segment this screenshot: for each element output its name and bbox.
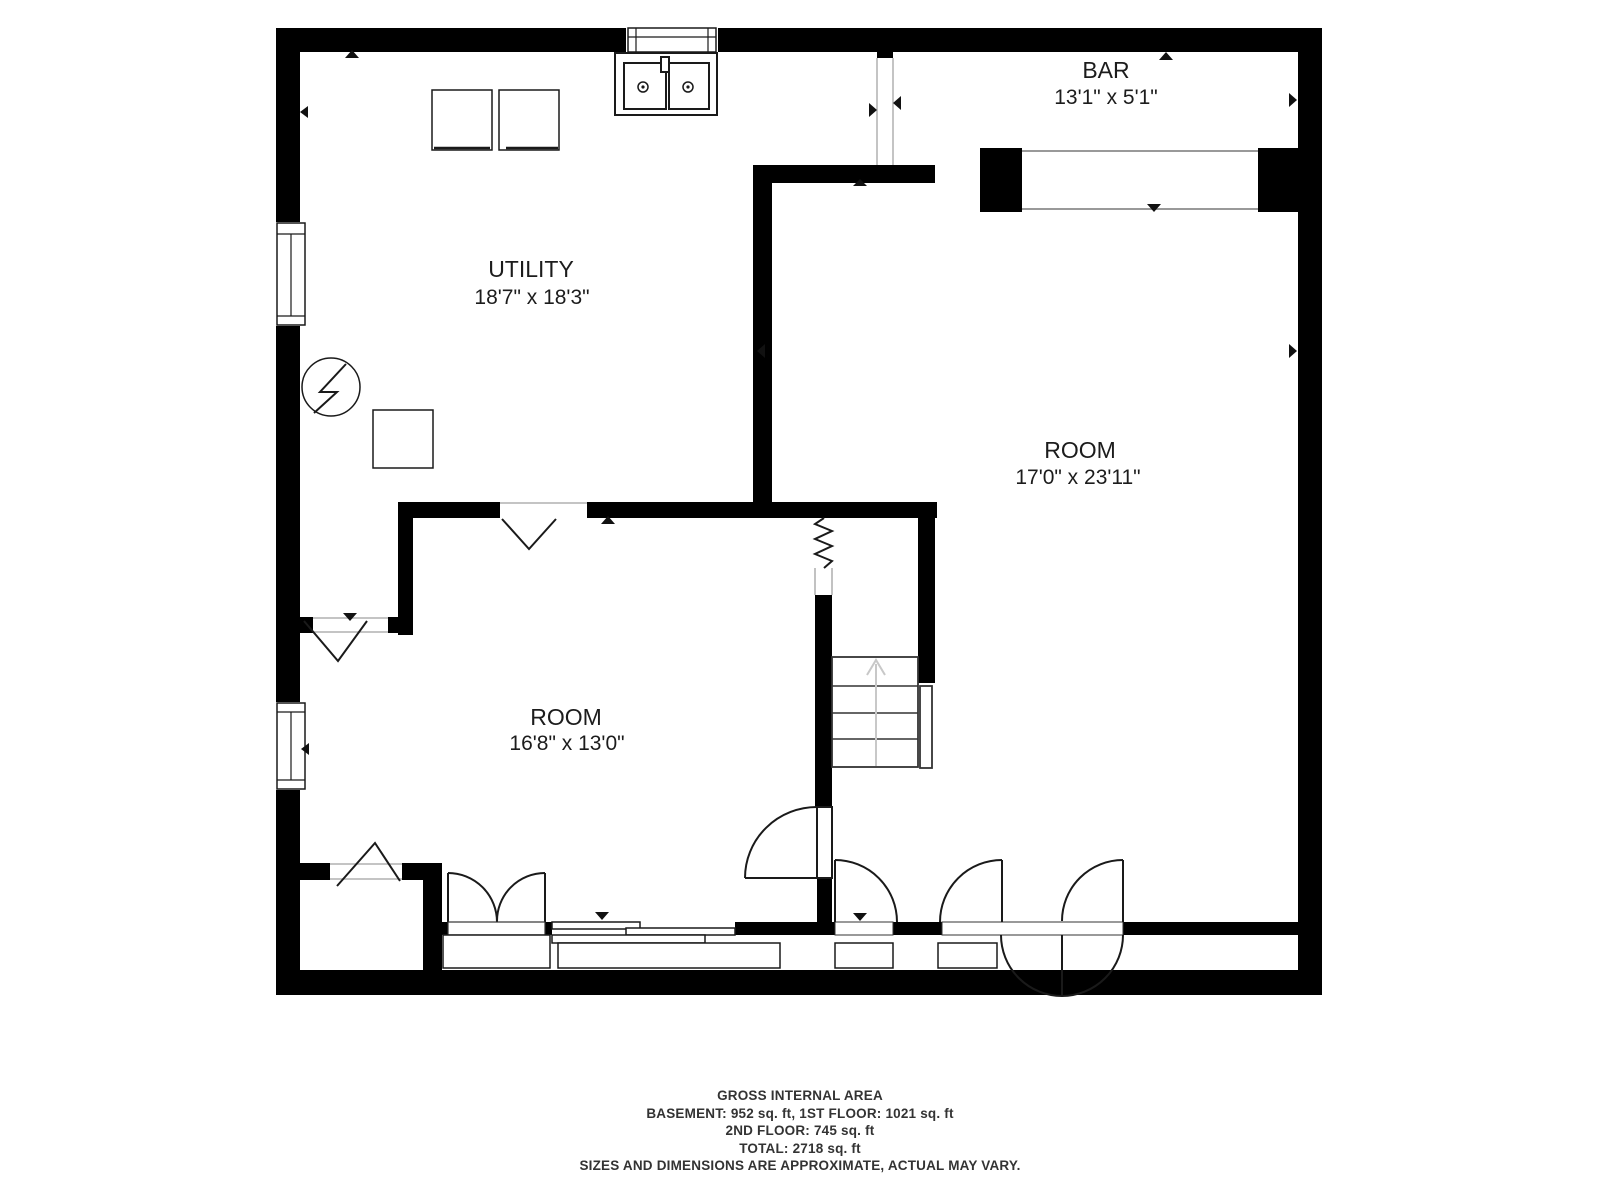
area-summary-line1: BASEMENT: 952 sq. ft, 1ST FLOOR: 1021 sq… <box>0 1105 1600 1123</box>
sink-icon <box>615 53 717 115</box>
stair-rail <box>920 686 932 768</box>
exterior-steps <box>443 935 997 968</box>
step-french <box>443 935 550 968</box>
step-sliding-lower <box>558 943 780 968</box>
window-icon-left-upper <box>275 222 305 326</box>
wall-break-zigzag-icon <box>815 518 832 595</box>
sliding-door-icon <box>552 922 735 935</box>
equipment-box-icon <box>373 410 433 468</box>
wall-bottom-inner-a <box>735 922 835 935</box>
threshold-door-a <box>835 922 893 935</box>
french-doors-icon <box>448 873 545 922</box>
bar-counter <box>980 148 1298 212</box>
wall-bottom-inner-c <box>1123 922 1298 935</box>
step-door-a <box>835 943 893 968</box>
threshold-double-opening <box>942 922 1123 935</box>
wall-mid-left <box>398 502 500 518</box>
wall-french-stub-right <box>545 922 552 935</box>
chevron-mid-door <box>502 519 556 549</box>
wall-top <box>276 28 1322 52</box>
wall-utility-room-divider <box>753 165 772 518</box>
wall-closet-top-left <box>300 863 330 880</box>
room-dims-lower-room: 16'8" x 13'0" <box>509 732 624 755</box>
room-dims-utility: 18'7" x 18'3" <box>474 286 589 309</box>
door-stairwell <box>745 807 832 878</box>
door-arc-b <box>940 860 1002 922</box>
wall-right <box>1298 28 1322 995</box>
appliance-icon-1 <box>432 90 492 150</box>
passage-stub <box>877 52 893 58</box>
wall-utility-bar <box>753 165 935 183</box>
wall-left <box>276 28 300 970</box>
step-sliding-upper <box>552 935 705 943</box>
room-label-lower-room: ROOM <box>530 704 602 730</box>
wall-bottom-inner-b <box>893 922 942 935</box>
wall-french-stub-left <box>441 922 448 935</box>
wall-mid-right <box>587 502 937 518</box>
area-summary-line2: 2ND FLOOR: 745 sq. ft <box>0 1122 1600 1140</box>
window-icon-top <box>626 27 718 53</box>
area-summary-disclaimer: SIZES AND DIMENSIONS ARE APPROXIMATE, AC… <box>0 1157 1600 1175</box>
area-summary: GROSS INTERNAL AREA BASEMENT: 952 sq. ft… <box>0 1087 1600 1175</box>
room-label-utility: UTILITY <box>488 256 574 282</box>
wall-stairwell-right <box>918 518 935 683</box>
wall-closet-right <box>423 880 442 972</box>
stairs-icon <box>832 657 932 768</box>
wall-bottom <box>276 970 1322 995</box>
bar-counter-block-left <box>980 148 1022 212</box>
room-label-bar: BAR <box>1082 57 1129 83</box>
wall-closet-top-right <box>402 863 442 880</box>
door-arc-a <box>835 860 897 922</box>
wall-lroom-vertical <box>398 518 413 635</box>
interior-walls <box>300 52 1298 972</box>
window-icon-left-lower <box>275 702 305 790</box>
chevron-left-door <box>304 621 367 661</box>
area-summary-title: GROSS INTERNAL AREA <box>0 1087 1600 1105</box>
wall-stairwell-left <box>815 595 832 807</box>
floor-plan-drawing: BAR 13'1" x 5'1" UTILITY 18'7" x 18'3" R… <box>0 0 1600 1200</box>
appliance-icon-2 <box>499 90 559 150</box>
room-label-right-room: ROOM <box>1044 437 1116 463</box>
electrical-panel-icon <box>302 358 360 416</box>
floor-plan-page: BAR 13'1" x 5'1" UTILITY 18'7" x 18'3" R… <box>0 0 1600 1200</box>
room-dims-bar: 13'1" x 5'1" <box>1054 86 1158 109</box>
room-dims-right-room: 17'0" x 23'11" <box>1015 466 1140 489</box>
step-door-b <box>938 943 997 968</box>
threshold-french-doors <box>448 922 545 935</box>
bar-counter-block-right <box>1258 148 1298 212</box>
door-arc-c <box>1062 860 1123 922</box>
door-chevron-marks <box>304 519 556 886</box>
area-summary-line3: TOTAL: 2718 sq. ft <box>0 1140 1600 1158</box>
